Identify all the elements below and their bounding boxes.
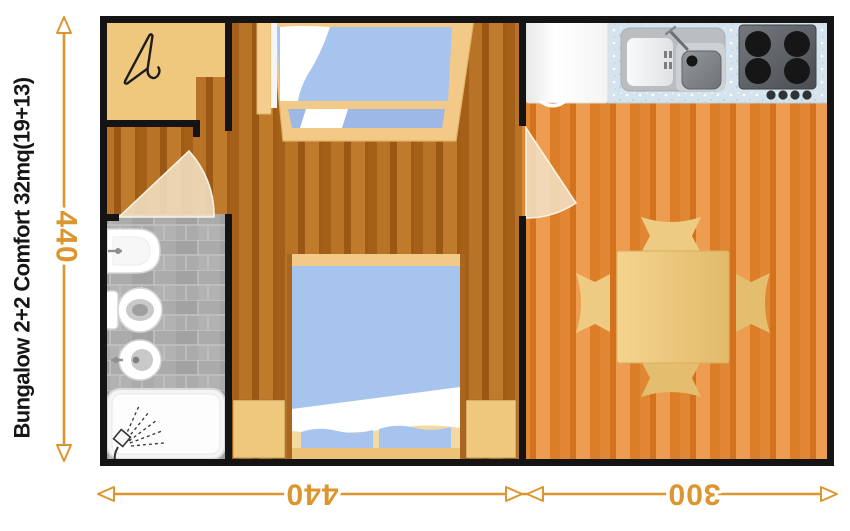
bunk-lower-blanket bbox=[300, 109, 348, 128]
double-bed bbox=[287, 254, 465, 462]
bunk-gap bbox=[271, 22, 277, 108]
bidet-drain bbox=[133, 357, 140, 364]
kitchen-sink bbox=[621, 27, 725, 91]
closet-floor-notch bbox=[196, 77, 229, 127]
wall-kitchen-top bbox=[519, 16, 526, 126]
wall-closet-bottom bbox=[103, 120, 198, 127]
bidet-faucet-head bbox=[113, 357, 119, 363]
chair-right bbox=[736, 273, 770, 333]
floorplan-canvas: 440 440 300 Bungalow 2+2 Comfort 32mq(19… bbox=[0, 0, 850, 531]
dim-arrow-up bbox=[57, 17, 71, 33]
chair-top bbox=[641, 217, 701, 251]
dim-arrow-right bbox=[821, 487, 837, 501]
dim-arrow-down bbox=[57, 445, 71, 461]
sink-basin bbox=[682, 51, 721, 89]
wall-kitchen-bottom bbox=[519, 216, 526, 463]
fridge-body bbox=[526, 19, 608, 103]
dim-height-label: 440 bbox=[50, 210, 83, 263]
kitchen-block bbox=[526, 19, 828, 106]
floorplan-page: 440 440 300 Bungalow 2+2 Comfort 32mq(19… bbox=[0, 0, 850, 531]
dim-width-right-label: 300 bbox=[667, 478, 720, 511]
fridge bbox=[526, 19, 608, 106]
bed-pillow-right bbox=[379, 426, 451, 449]
dim-width-left-label: 440 bbox=[285, 478, 338, 511]
bunk-bed bbox=[257, 19, 474, 141]
dim-arrow-mid-left bbox=[527, 487, 543, 501]
sink-drain bbox=[687, 56, 698, 67]
dining-table bbox=[617, 251, 729, 363]
bunk-post bbox=[257, 19, 271, 114]
nightstand-left bbox=[233, 400, 285, 458]
toilet bbox=[105, 288, 162, 332]
wall-closet-right bbox=[225, 16, 232, 131]
wall-bathroom-right bbox=[225, 214, 232, 463]
wall-closet-jamb bbox=[193, 120, 200, 137]
toilet-inner bbox=[132, 304, 148, 316]
burner bbox=[784, 58, 810, 84]
burner bbox=[745, 31, 771, 57]
bed-foot-bar bbox=[292, 254, 460, 268]
dim-arrow-mid-right bbox=[506, 487, 522, 501]
bath-sink bbox=[107, 229, 160, 273]
plan-title: Bungalow 2+2 Comfort 32mq(19+13) bbox=[10, 77, 35, 438]
bath-sink-faucet-head bbox=[115, 248, 121, 254]
chair-bottom bbox=[641, 363, 701, 397]
burner bbox=[784, 31, 810, 57]
burner bbox=[745, 58, 771, 84]
chair-left bbox=[576, 273, 610, 333]
dim-arrow-left bbox=[98, 487, 114, 501]
shower-tray bbox=[107, 389, 225, 461]
nightstand-right bbox=[466, 400, 516, 458]
wall-bathroom-stub bbox=[103, 214, 119, 221]
shower-inner bbox=[112, 394, 220, 454]
stove bbox=[739, 25, 816, 100]
